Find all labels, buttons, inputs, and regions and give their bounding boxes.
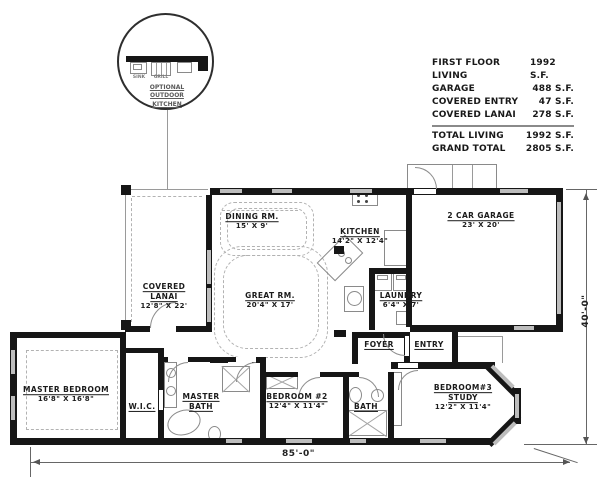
stove-burner [357,200,360,203]
fixture-ellipse [345,257,352,264]
dimension-arrow [563,459,573,465]
wall-segment [13,332,125,338]
room-name: MASTER [182,392,219,402]
wall-segment [369,268,411,274]
wall-segment [334,246,344,254]
floor-plan-canvas: OPTIONAL OUTDOOR KITCHEN SINK GRILL FIRS… [0,0,600,485]
callout-line: KITCHEN [150,101,184,109]
wall-segment [388,372,394,444]
row-value: 488 S.F. [532,83,574,96]
callout-optional-outdoor-kitchen: OPTIONAL OUTDOOR KITCHEN [150,84,184,109]
row-label: COVERED ENTRY [432,96,518,109]
row-value: 2805 S.F. [526,143,574,156]
room-dims: 14'2" X 12'4" [332,237,388,246]
fixture-outline [377,275,388,280]
window-segment [11,396,15,420]
table-divider [432,125,574,127]
plan-line [458,336,502,337]
window-segment [272,189,292,193]
table-row: COVERED LANAI 278 S.F. [432,109,574,122]
room-dims: 23' X 20' [447,221,514,230]
wall-segment [210,358,228,363]
area-table: FIRST FLOOR LIVING 1992 S.F. GARAGE 488 … [432,57,574,156]
wall-segment [10,332,17,445]
room-label-wic: W.I.C. [129,402,156,412]
room-label-bedroom3: BEDROOM#3 STUDY 12'2" X 11'4" [434,383,492,413]
wall-segment [121,320,131,330]
callout-line: OPTIONAL [150,84,184,92]
dimension-arrow [583,437,589,447]
wall-segment [352,332,358,364]
door-swing-arc [359,377,379,397]
dimension-arrow [30,459,40,465]
room-label-laundry: LAUNDRY 6'4" X 7' [380,291,423,311]
wall-segment [410,325,563,332]
wall-opening [398,363,418,368]
fixture-outline [133,64,142,70]
plan-line [166,63,167,75]
window-segment [500,189,528,193]
wall-segment [343,372,349,444]
window-segment [350,439,366,443]
dimension-line [566,189,597,190]
fixture-ellipse [166,386,176,396]
room-name: COVERED [141,282,188,292]
plan-line [125,189,126,328]
room-dims: 12'4" X 11'4" [266,402,327,411]
plan-line [502,336,503,363]
row-label: TOTAL LIVING [432,130,504,143]
row-value: 1992 S.F. [530,57,574,83]
dimension-line [30,462,570,463]
wall-segment [198,56,208,71]
table-row: GARAGE 488 S.F. [432,83,574,96]
wall-segment [120,348,164,353]
table-total-row: TOTAL LIVING 1992 S.F. [432,130,574,143]
wall-segment [452,332,458,366]
dashed-line [222,210,298,211]
room-label-bath: BATH [354,402,378,412]
room-label-dining: DINING RM. 15' X 9' [225,212,278,232]
room-name: BEDROOM #2 [266,392,327,402]
plan-line [472,165,473,189]
plan-line [452,165,453,189]
room-name: 2 CAR GARAGE [447,211,514,221]
room-name: BATH [354,402,378,412]
wall-opening [405,336,409,356]
room-name: GREAT RM. [245,291,295,301]
window-segment [220,189,242,193]
room-name: W.I.C. [129,402,156,412]
room-dims: 20'4" X 17' [245,301,295,310]
row-value: 278 S.F. [532,109,574,122]
wall-segment [369,268,375,330]
wall-opening [159,390,163,410]
room-label-garage: 2 CAR GARAGE 23' X 20' [447,211,514,231]
room-label-master-bath: MASTER BATH [182,392,219,412]
table-row: FIRST FLOOR LIVING 1992 S.F. [432,57,574,83]
wall-segment [260,357,266,444]
room-name: ENTRY [414,340,443,350]
row-label: GRAND TOTAL [432,143,506,156]
plan-line [161,63,162,75]
dashed-line [132,196,202,197]
table-total-row: GRAND TOTAL 2805 S.F. [432,143,574,156]
wall-segment [13,438,167,445]
fixture-outline [396,275,406,280]
dimension-arrow [583,190,589,200]
wall-segment [334,330,346,337]
plan-line [167,110,168,189]
room-name: LAUNDRY [380,291,423,301]
plan-line [156,63,157,75]
room-name: FOYER [364,340,394,350]
room-dims: 15' X 9' [225,222,278,231]
room-label-kitchen: KITCHEN 14'2" X 12'4" [332,227,388,247]
wall-segment [121,185,131,195]
room-name: MASTER BEDROOM [23,385,109,395]
room-dims: 12'2" X 11'4" [434,403,492,412]
room-dims: 12'8" X 22' [141,302,188,311]
callout-line: OUTDOOR [150,92,184,100]
wall-opening [414,189,436,194]
row-value: 1992 S.F. [526,130,574,143]
stove-burner [365,200,368,203]
grill-label: GRILL [154,75,169,80]
room-name: BEDROOM#3 [434,383,492,393]
room-dims: 16'8" X 16'8" [23,395,109,404]
row-value: 47 S.F. [539,96,574,109]
table-row: COVERED ENTRY 47 S.F. [432,96,574,109]
row-label: FIRST FLOOR LIVING [432,57,530,83]
window-segment [207,288,211,322]
room-label-entry: ENTRY [414,340,443,350]
room-label-bedroom2: BEDROOM #2 12'4" X 11'4" [266,392,327,412]
window-segment [350,189,372,193]
row-label: GARAGE [432,83,475,96]
room-name: DINING RM. [225,212,278,222]
room-name: KITCHEN [332,227,388,237]
window-segment [11,350,15,374]
window-segment [286,439,312,443]
room-name: BATH [182,402,219,412]
sink-label: SINK [133,75,145,80]
room-name: LANAI [141,292,188,302]
room-dims: 6'4" X 7' [380,301,423,310]
room-name: STUDY [434,393,492,403]
window-segment [514,326,534,330]
door-swing-arc [236,362,256,382]
height-dimension-label: 40'-0" [581,281,591,341]
fixture-outline [177,62,192,73]
window-segment [226,439,242,443]
room-label-master-bedroom: MASTER BEDROOM 16'8" X 16'8" [23,385,109,405]
window-segment [207,250,211,284]
room-label-foyer: FOYER [364,340,394,350]
room-label-covered-lanai: COVERED LANAI 12'8" X 22' [141,282,188,312]
window-segment [420,439,446,443]
plan-line [125,189,208,190]
room-label-great-room: GREAT RM. 20'4" X 17' [245,291,295,311]
window-segment [515,394,519,418]
window-segment [557,202,561,314]
row-label: COVERED LANAI [432,109,516,122]
dashed-line [131,198,132,322]
width-dimension-label: 85'-0" [282,449,315,459]
fixture-ellipse [347,291,362,306]
